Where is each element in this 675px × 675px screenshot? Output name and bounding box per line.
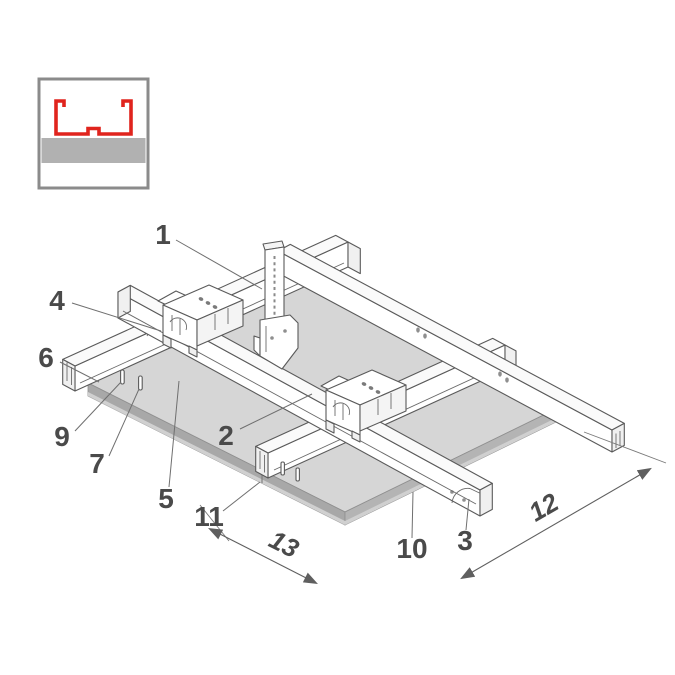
diagram-canvas: 1 4 6 9 7 5 2 11 10 3 13 12 [0,0,675,675]
board-layer-swatch [42,138,146,163]
legend-inset [39,79,148,188]
ceiling-system-drawing: 1 4 6 9 7 5 2 11 10 3 13 12 [0,0,675,675]
callout-4: 4 [49,285,65,316]
screw-pin-2 [139,376,143,390]
dimension-label-13: 13 [264,524,304,564]
callout-9: 9 [54,421,70,452]
callout-10: 10 [396,533,427,564]
callout-2: 2 [218,420,234,451]
callout-7: 7 [89,448,105,479]
dimension-label-12: 12 [523,487,564,528]
callout-5: 5 [158,483,174,514]
screw-pin-1 [121,370,125,384]
callout-3: 3 [457,525,473,556]
callout-1: 1 [155,219,171,250]
callout-6: 6 [38,342,54,373]
callout-11: 11 [194,501,224,532]
